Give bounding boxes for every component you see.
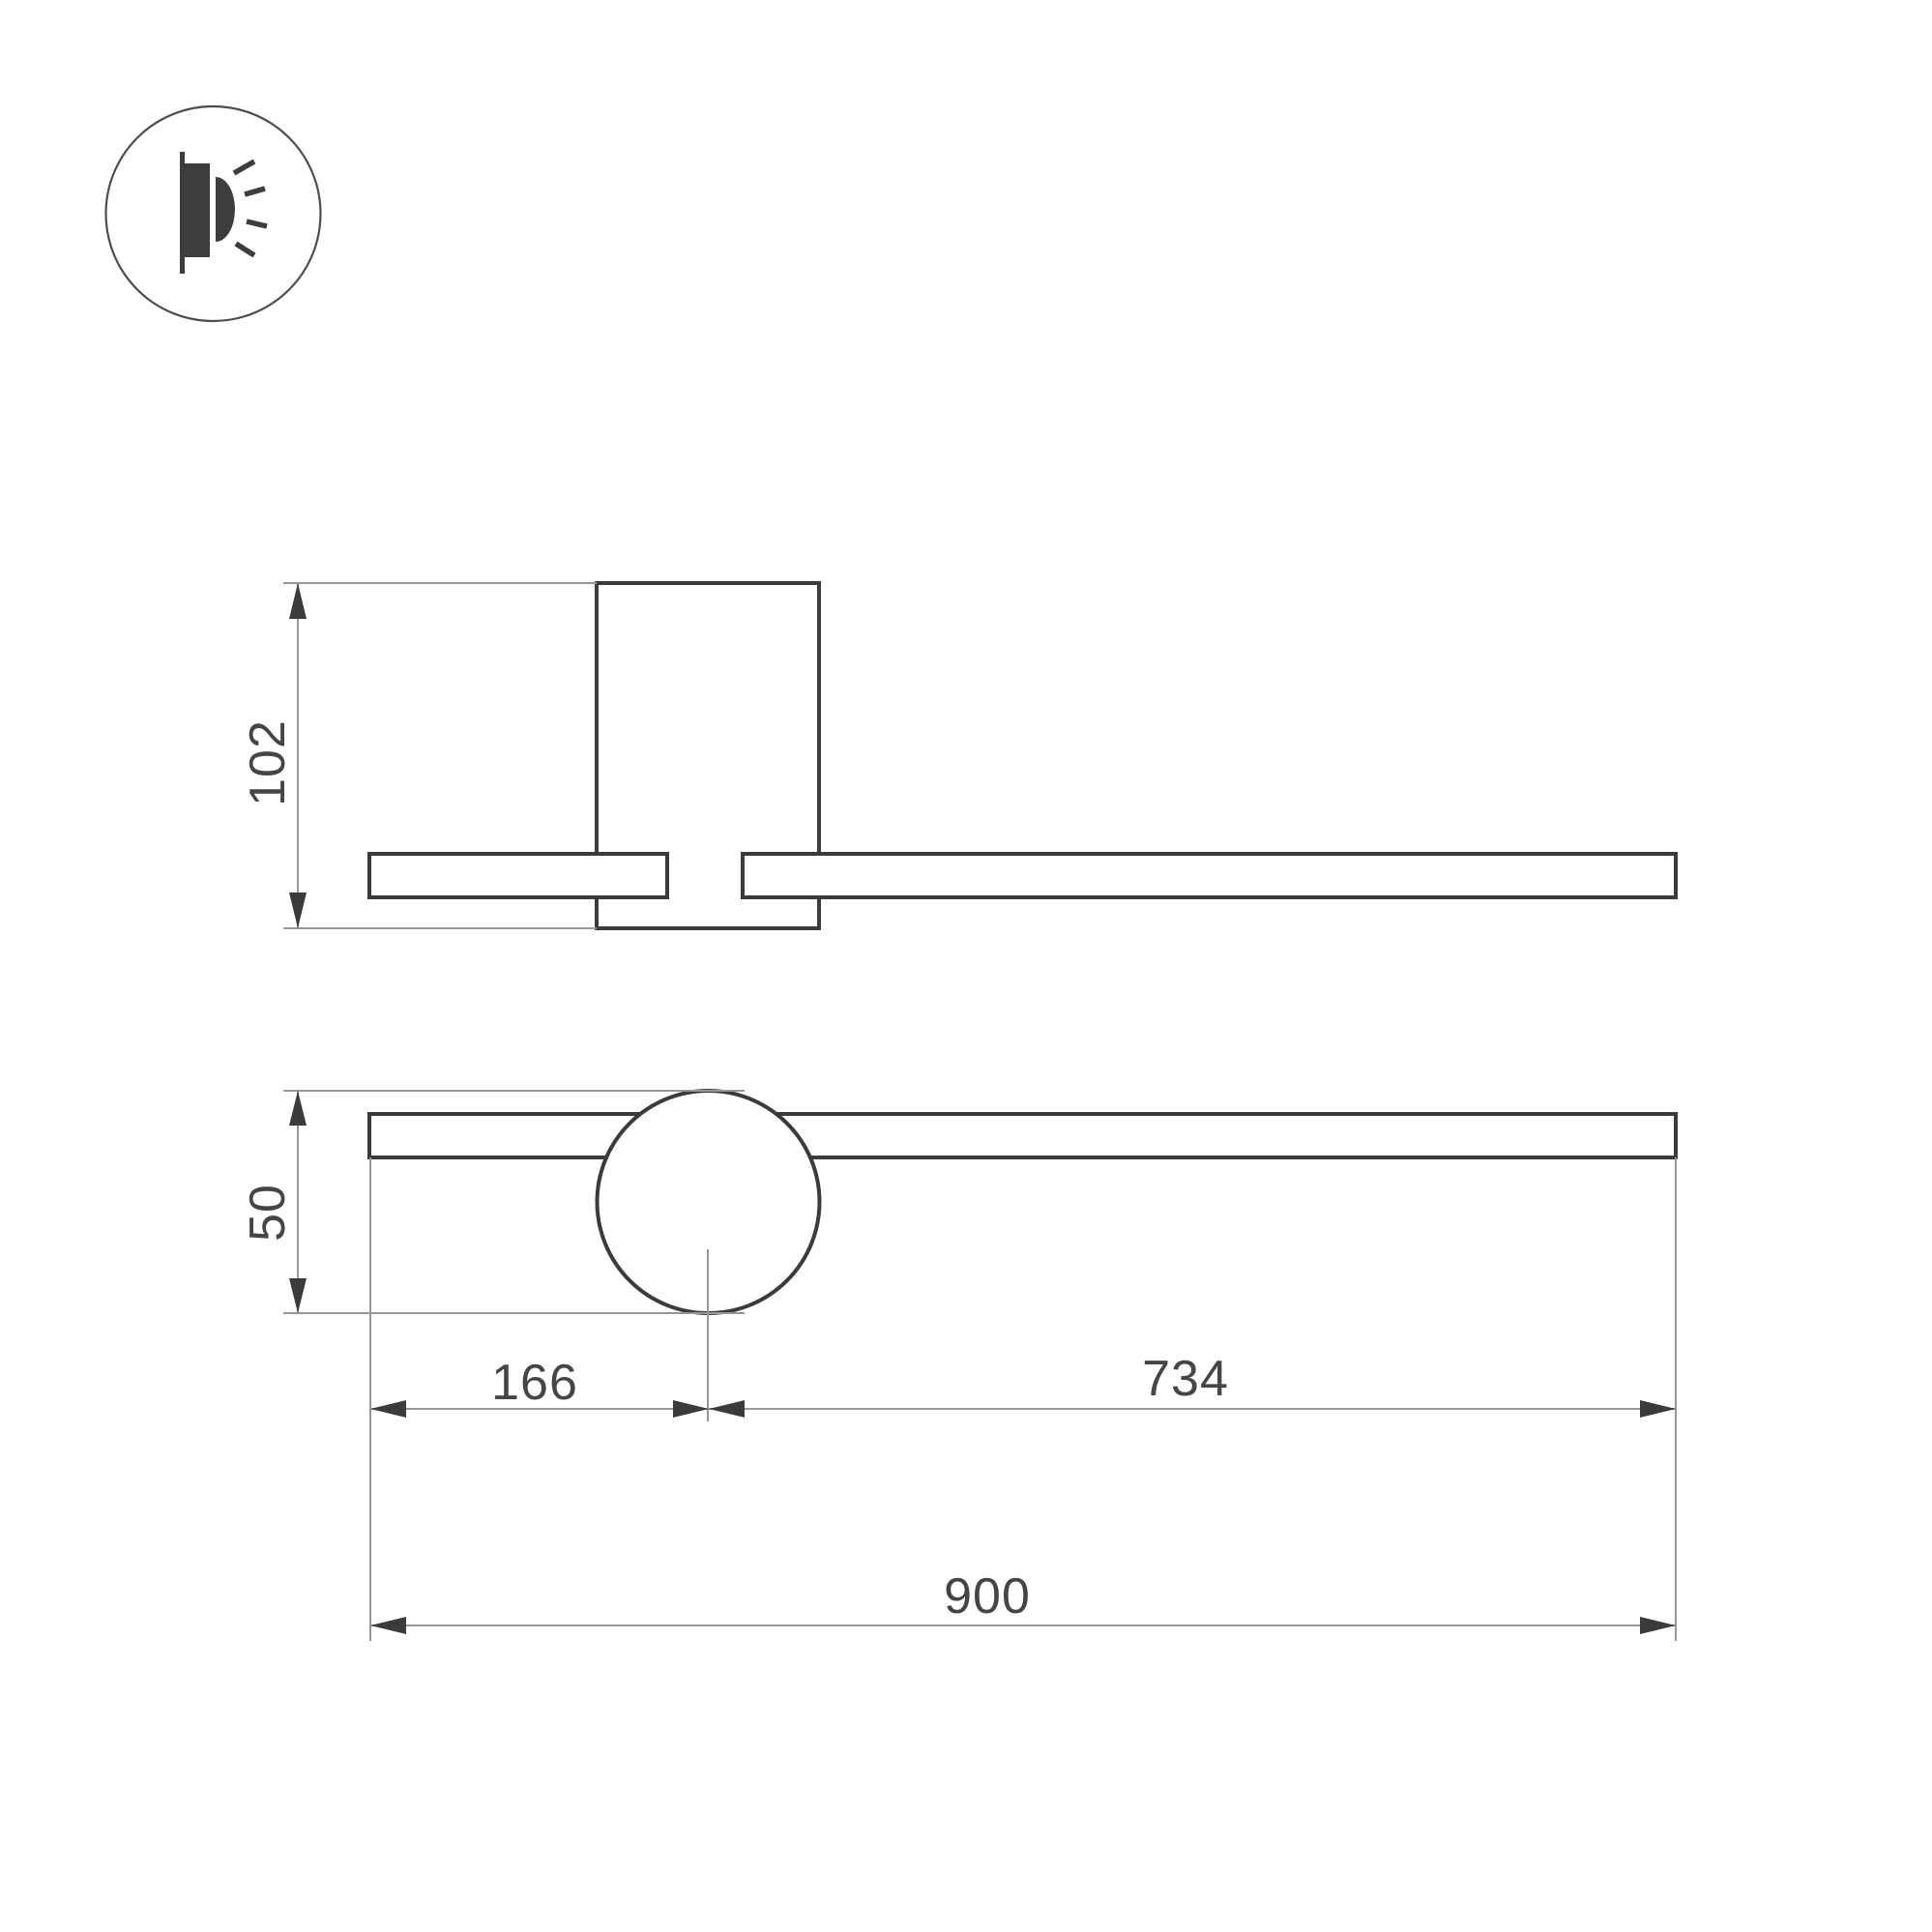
side-view-bar-left bbox=[369, 854, 667, 897]
dimension-drawing-page: 102 50 166 734 900 bbox=[0, 0, 1932, 1932]
icon-lamp-body bbox=[185, 163, 210, 257]
arrow-734-right bbox=[1640, 1400, 1676, 1418]
icon-light-ray-4 bbox=[236, 244, 254, 255]
wall-lamp-icon bbox=[106, 106, 321, 321]
arrow-50-down bbox=[289, 1278, 307, 1313]
dim-label-50: 50 bbox=[240, 1184, 296, 1242]
arrow-900-left bbox=[370, 1617, 406, 1634]
side-view-bar-right bbox=[743, 854, 1676, 897]
dimension-drawing: 102 50 166 734 900 bbox=[0, 0, 1932, 1932]
arrow-50-up bbox=[289, 1091, 307, 1126]
icon-light-ray-3 bbox=[247, 221, 267, 226]
dim-label-734: 734 bbox=[1142, 1351, 1229, 1407]
arrowheads bbox=[289, 583, 1676, 1634]
arrow-102-up bbox=[289, 583, 307, 619]
front-view-bar bbox=[369, 1114, 1676, 1157]
arrow-102-down bbox=[289, 893, 307, 928]
arrow-166-left bbox=[370, 1400, 406, 1418]
arrow-900-right bbox=[1640, 1617, 1676, 1634]
dim-label-166: 166 bbox=[491, 1355, 578, 1411]
dim-label-900: 900 bbox=[944, 1568, 1031, 1625]
dim-label-102: 102 bbox=[240, 719, 296, 806]
arrow-166-right bbox=[673, 1400, 709, 1418]
icon-circle-border bbox=[106, 106, 321, 321]
front-view bbox=[369, 1091, 1676, 1313]
side-view bbox=[369, 583, 1676, 928]
icon-lamp-lens bbox=[216, 177, 235, 242]
icon-light-ray-1 bbox=[234, 161, 254, 173]
arrow-734-left bbox=[709, 1400, 745, 1418]
icon-light-ray-2 bbox=[245, 189, 265, 194]
dimension-lines bbox=[298, 583, 1676, 1625]
